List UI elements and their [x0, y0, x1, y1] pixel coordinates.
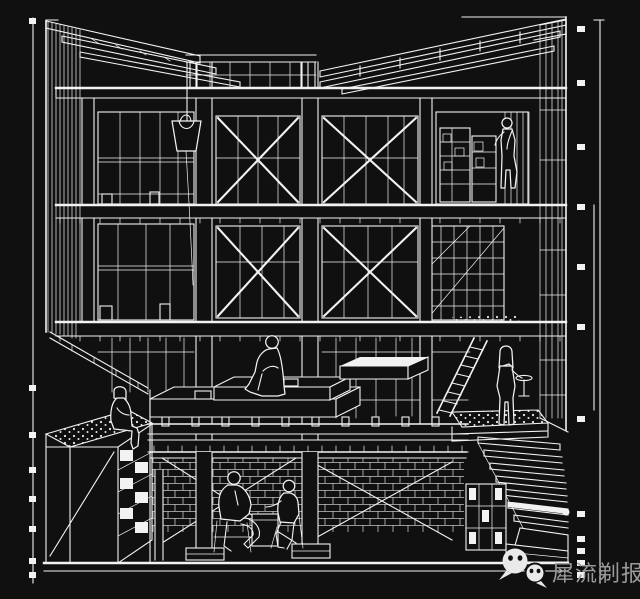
slab-planting-strip — [452, 315, 520, 323]
ground-line — [44, 563, 568, 572]
ladder — [437, 338, 487, 416]
section-drawing-canvas: 犀流剃报 — [0, 0, 640, 599]
watermark-text: 犀流剃报 — [552, 562, 640, 587]
middle-floor-scaffold-rack — [428, 226, 504, 320]
person-climbing-upper-right — [495, 118, 517, 188]
low-table — [252, 514, 278, 546]
person-sitting-platform-center — [245, 336, 285, 396]
right-facade-wall — [540, 17, 568, 432]
upper-floor-shelving-rack — [440, 128, 496, 202]
round-knob — [563, 509, 570, 516]
section-drawing: 犀流剃报 — [0, 0, 640, 599]
scale-ruler-right — [577, 20, 604, 583]
staircase — [466, 437, 570, 562]
stair-panel-wall — [466, 484, 506, 550]
scale-ruler-left — [29, 18, 36, 583]
side-table — [516, 375, 532, 396]
watermark: 犀流剃报 — [499, 549, 640, 589]
